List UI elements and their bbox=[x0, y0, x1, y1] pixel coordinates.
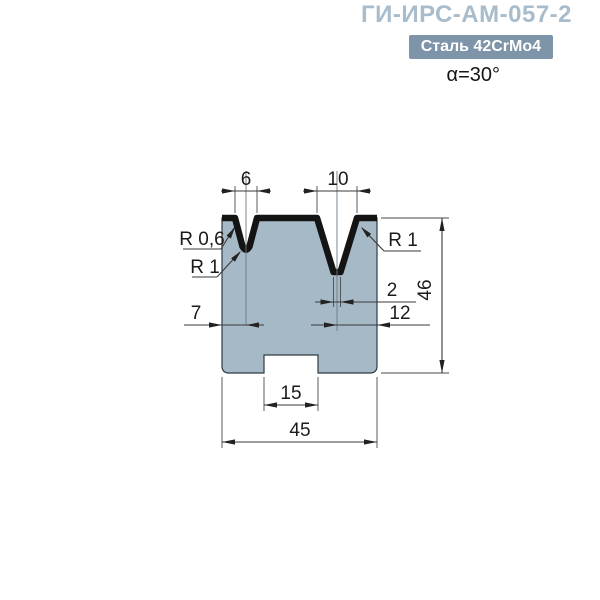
die-technical-drawing: 6 10 46 2 7 12 15 bbox=[0, 0, 600, 600]
dim-slot-width-value: 15 bbox=[280, 383, 301, 404]
dim-v2-width-value: 10 bbox=[327, 169, 348, 190]
dim-v2-offset-value: 12 bbox=[389, 303, 410, 324]
dim-body-width-value: 45 bbox=[289, 420, 310, 441]
dim-v1-offset-value: 7 bbox=[191, 303, 202, 324]
dim-v2-width: 10 bbox=[303, 169, 371, 194]
radius-top-left-label: R 0,6 bbox=[179, 229, 224, 250]
radius-v1-bottom-label: R 1 bbox=[190, 257, 220, 278]
dim-body-height: 46 bbox=[415, 218, 445, 373]
dim-body-width: 45 bbox=[222, 420, 377, 445]
dim-v1-width: 6 bbox=[221, 169, 271, 194]
dim-v1-width-value: 6 bbox=[241, 169, 252, 190]
dim-v2-flat-value: 2 bbox=[387, 280, 398, 301]
die-cross-section bbox=[222, 218, 377, 373]
dim-body-height-value: 46 bbox=[415, 279, 436, 300]
dim-slot-width: 15 bbox=[264, 383, 318, 408]
radius-top-right-label: R 1 bbox=[388, 230, 418, 251]
